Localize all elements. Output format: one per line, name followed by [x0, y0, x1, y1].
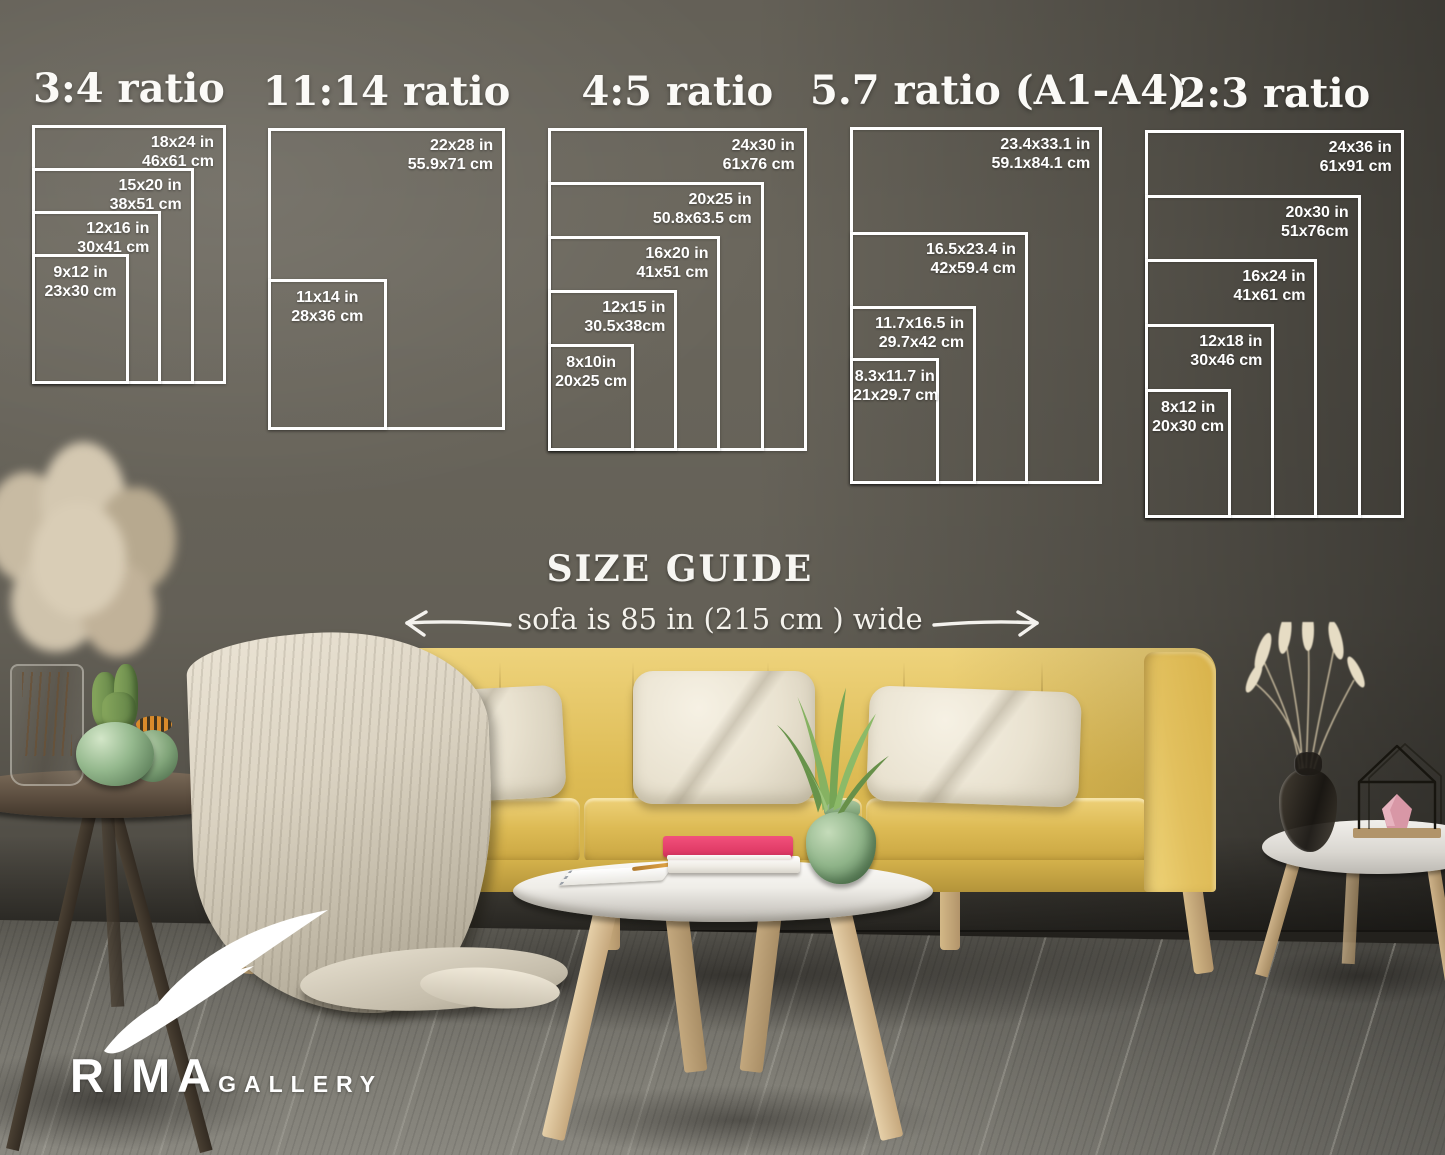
size-inches: 9x12 in — [35, 263, 126, 282]
size-inches: 16x20 in — [636, 244, 708, 263]
size-inches: 20x25 in — [653, 190, 752, 209]
size-label: 12x15 in30.5x38cm — [584, 298, 665, 336]
size-cm: 29.7x42 cm — [875, 333, 964, 352]
size-label: 9x12 in23x30 cm — [35, 263, 126, 301]
size-label: 8x10in20x25 cm — [551, 353, 631, 391]
size-frame-8x12in: 8x12 in20x30 cm — [1145, 389, 1231, 518]
size-label: 8x12 in20x30 cm — [1148, 398, 1228, 436]
size-inches: 8.3x11.7 in — [853, 367, 936, 386]
size-inches: 12x15 in — [584, 298, 665, 317]
size-cm: 61x76 cm — [723, 155, 795, 174]
size-cm: 30x46 cm — [1190, 351, 1262, 370]
size-cm: 30.5x38cm — [584, 317, 665, 336]
size-cm: 41x61 cm — [1233, 286, 1305, 305]
size-inches: 24x30 in — [723, 136, 795, 155]
ratio-title: 3:4 ratio — [0, 65, 266, 112]
size-inches: 22x28 in — [408, 136, 493, 155]
size-label: 16x20 in41x51 cm — [636, 244, 708, 282]
size-cm: 20x25 cm — [551, 372, 631, 391]
size-frame-8x10in: 8x10in20x25 cm — [548, 344, 634, 452]
size-frame-9x12in: 9x12 in23x30 cm — [32, 254, 129, 383]
ratio-title: 5.7 ratio (A1-A4) — [810, 67, 1142, 114]
size-label: 20x25 in50.8x63.5 cm — [653, 190, 752, 228]
size-inches: 20x30 in — [1281, 203, 1349, 222]
size-cm: 42x59.4 cm — [926, 259, 1016, 278]
size-inches: 16.5x23.4 in — [926, 240, 1016, 259]
size-cm: 50.8x63.5 cm — [653, 209, 752, 228]
size-inches: 8x10in — [551, 353, 631, 372]
size-inches: 11.7x16.5 in — [875, 314, 964, 333]
poster-size-guide-image: SIZE GUIDE sofa is 85 in (215 cm ) wide … — [0, 0, 1445, 1155]
size-label: 12x18 in30x46 cm — [1190, 332, 1262, 370]
size-label: 23.4x33.1 in59.1x84.1 cm — [992, 135, 1091, 173]
size-label: 22x28 in55.9x71 cm — [408, 136, 493, 174]
size-label: 24x30 in61x76 cm — [723, 136, 795, 174]
size-label: 16.5x23.4 in42x59.4 cm — [926, 240, 1016, 278]
size-label: 20x30 in51x76cm — [1281, 203, 1349, 241]
ratio-title: 11:14 ratio — [228, 68, 545, 115]
size-frame-11x14in: 11x14 in28x36 cm — [268, 279, 387, 430]
size-inches: 18x24 in — [142, 133, 214, 152]
size-inches: 23.4x33.1 in — [992, 135, 1091, 154]
size-label: 11x14 in28x36 cm — [271, 288, 384, 326]
size-frame-8.3x11.7in: 8.3x11.7 in21x29.7 cm — [850, 358, 939, 484]
size-cm: 61x91 cm — [1320, 157, 1392, 176]
size-cm: 51x76cm — [1281, 222, 1349, 241]
size-label: 15x20 in38x51 cm — [110, 176, 182, 214]
size-cm: 28x36 cm — [271, 307, 384, 326]
rima-logo-swoosh — [66, 893, 356, 1073]
brand-logo: RIMAGALLERY — [70, 1048, 383, 1103]
size-inches: 8x12 in — [1148, 398, 1228, 417]
size-cm: 23x30 cm — [35, 282, 126, 301]
size-inches: 12x18 in — [1190, 332, 1262, 351]
ratio-title: 4:5 ratio — [508, 68, 847, 115]
size-inches: 15x20 in — [110, 176, 182, 195]
size-label: 24x36 in61x91 cm — [1320, 138, 1392, 176]
size-cm: 59.1x84.1 cm — [992, 154, 1091, 173]
size-inches: 12x16 in — [77, 219, 149, 238]
size-cm: 20x30 cm — [1148, 417, 1228, 436]
size-label: 18x24 in46x61 cm — [142, 133, 214, 171]
size-label: 12x16 in30x41 cm — [77, 219, 149, 257]
ratio-title: 2:3 ratio — [1105, 70, 1444, 117]
size-label: 8.3x11.7 in21x29.7 cm — [853, 367, 936, 405]
size-label: 11.7x16.5 in29.7x42 cm — [875, 314, 964, 352]
brand-name: RIMA — [70, 1049, 218, 1102]
size-inches: 16x24 in — [1233, 267, 1305, 286]
size-label: 16x24 in41x61 cm — [1233, 267, 1305, 305]
size-cm: 41x51 cm — [636, 263, 708, 282]
size-inches: 11x14 in — [271, 288, 384, 307]
size-cm: 21x29.7 cm — [853, 386, 936, 405]
brand-suffix: GALLERY — [218, 1071, 383, 1097]
size-inches: 24x36 in — [1320, 138, 1392, 157]
size-cm: 55.9x71 cm — [408, 155, 493, 174]
